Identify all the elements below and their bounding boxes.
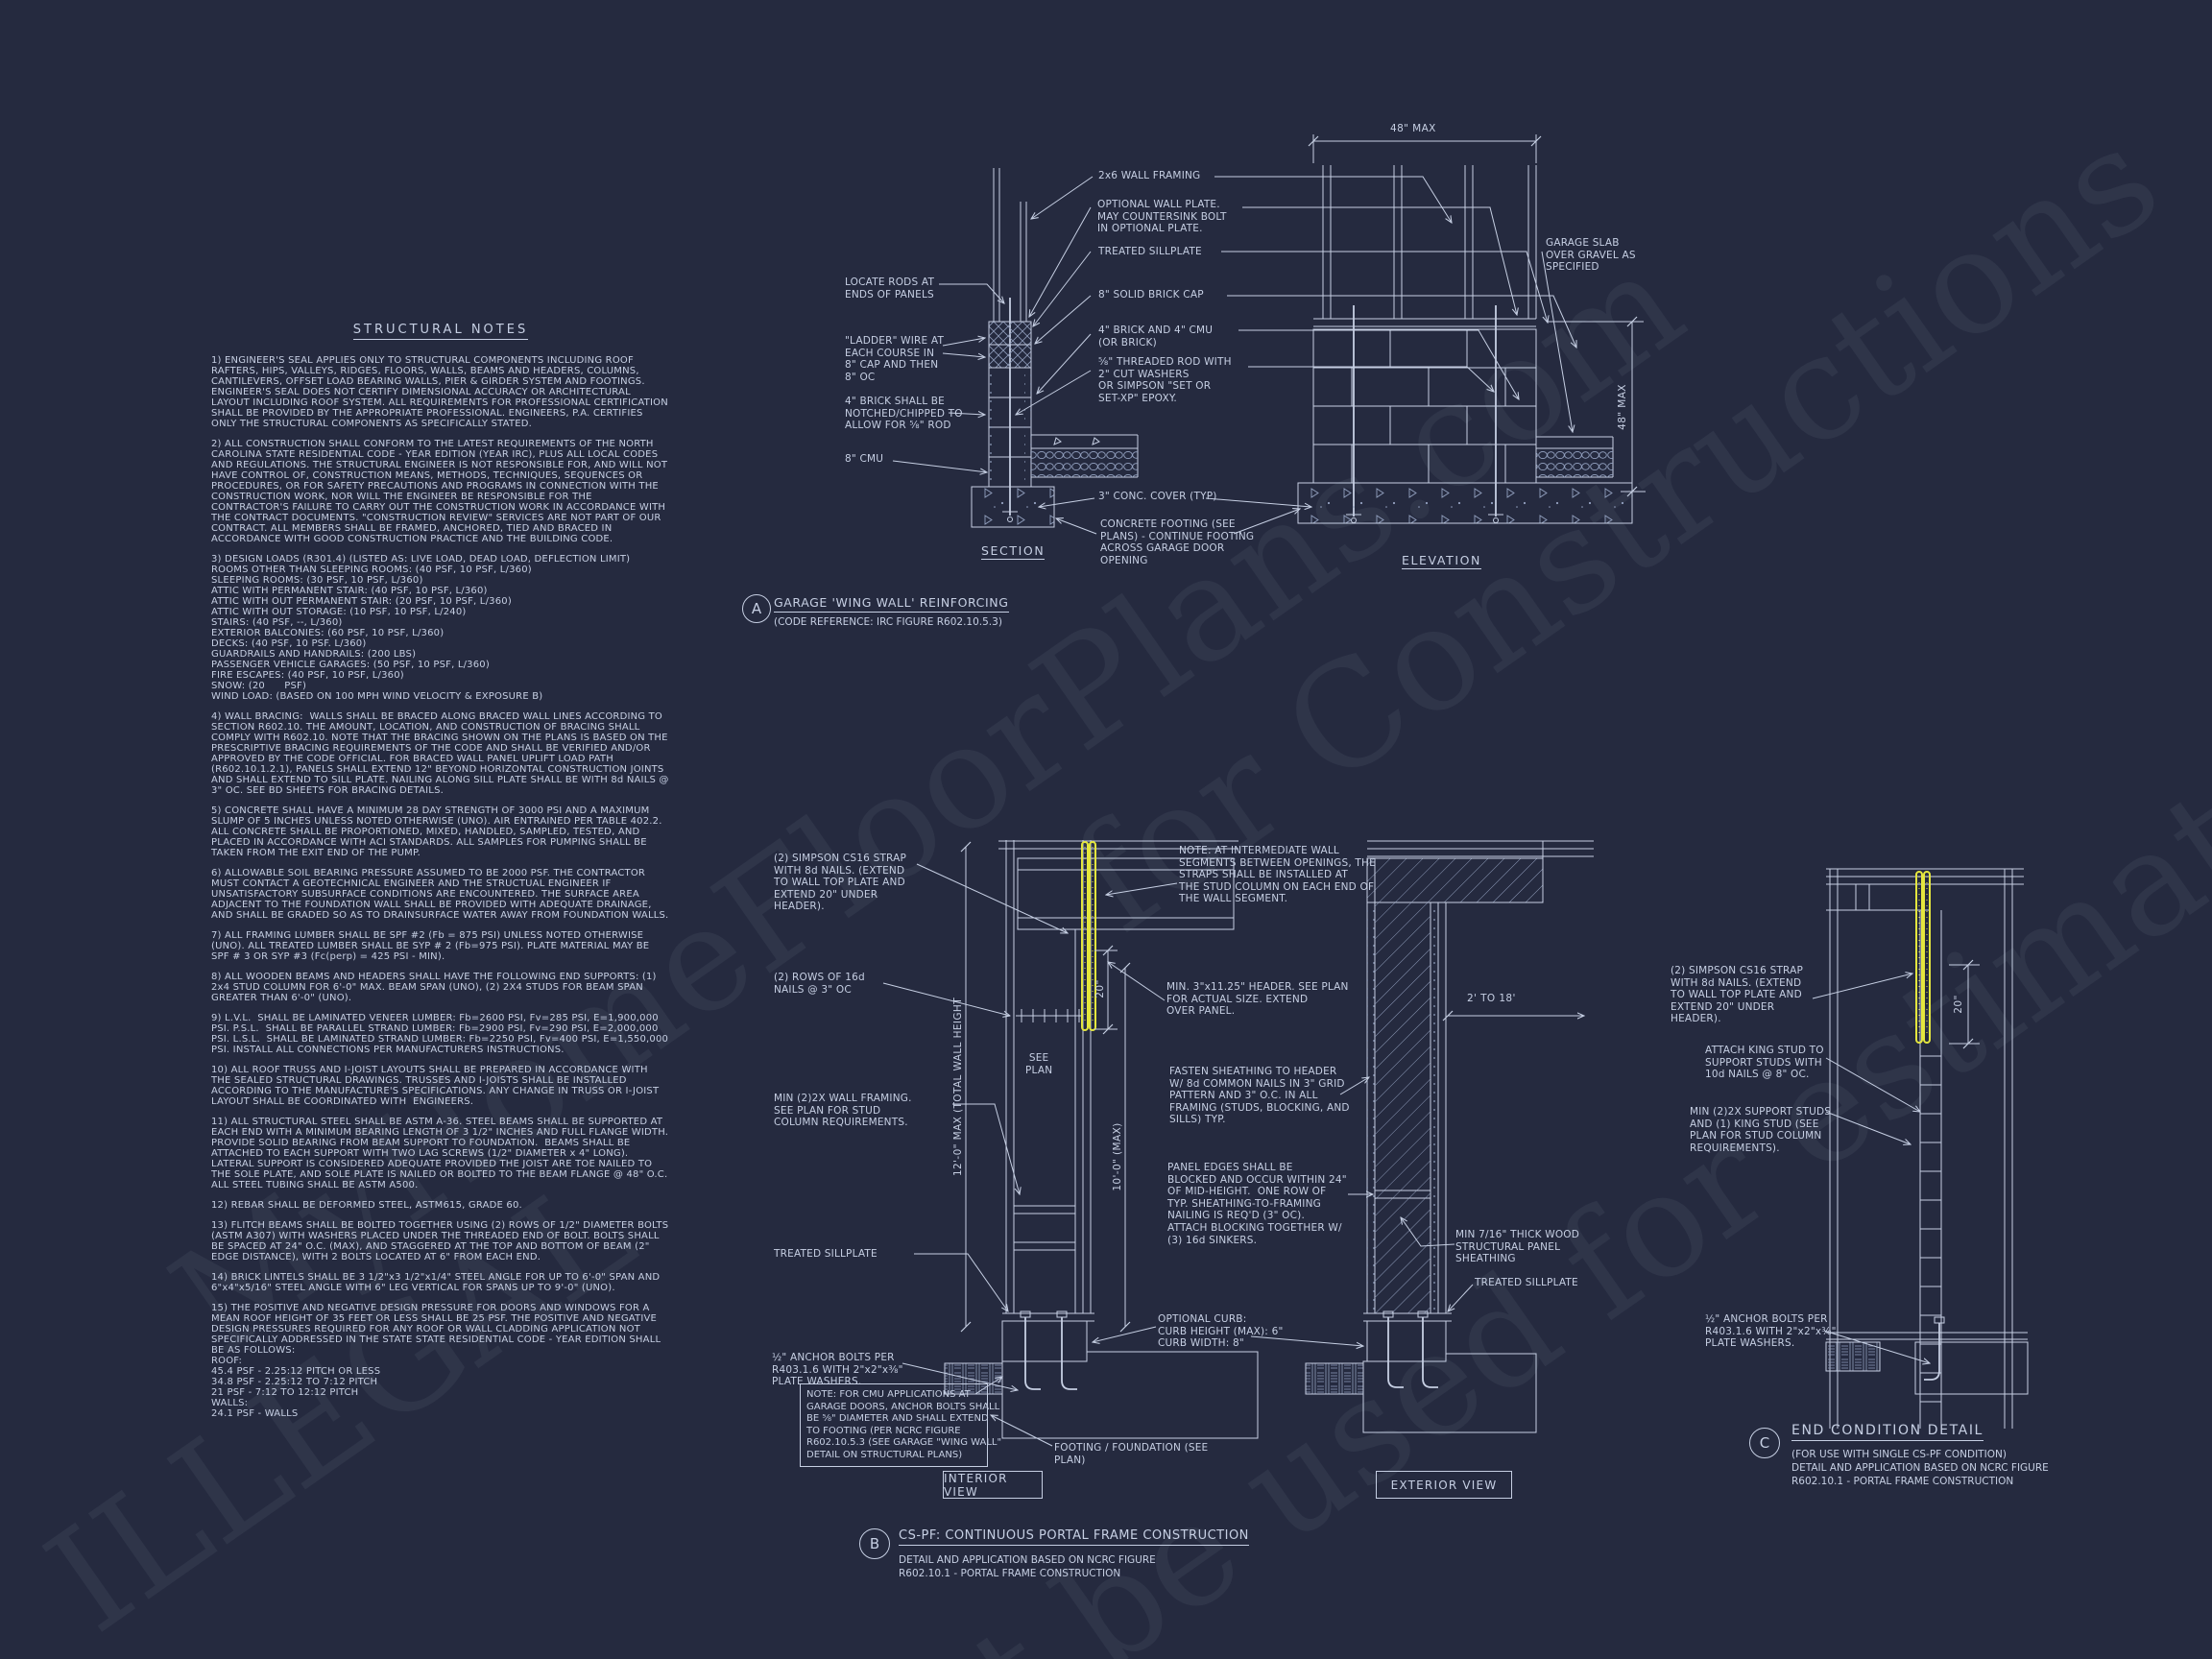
note-item: 9) L.V.L. SHALL BE LAMINATED VENEER LUMB… (211, 1013, 670, 1055)
label-8in-cmu: 8" CMU (845, 453, 883, 466)
label-panel-edges: PANEL EDGES SHALL BE BLOCKED AND OCCUR W… (1167, 1162, 1347, 1246)
label-min-header: MIN. 3"x11.25" HEADER. SEE PLAN FOR ACTU… (1166, 981, 1349, 1018)
note-item: 10) ALL ROOF TRUSS AND I-JOIST LAYOUTS S… (211, 1065, 670, 1107)
detail-a-heading: GARAGE 'WING WALL' REINFORCING (774, 595, 1009, 613)
blueprint-sheet: MyHomeFloorPlans.com for Constructions M… (0, 0, 2212, 1659)
label-concrete-footing: CONCRETE FOOTING (SEE PLANS) - CONTINUE … (1100, 518, 1254, 566)
dim-2-to-18: 2' TO 18' (1467, 993, 1516, 1004)
label-attach-king-stud: ATTACH KING STUD TO SUPPORT STUDS WITH 1… (1705, 1045, 1824, 1081)
label-anchor-bolts-c: ½" ANCHOR BOLTS PER R403.1.6 WITH 2"x2"x… (1705, 1313, 1837, 1350)
label-optional-curb: OPTIONAL CURB: CURB HEIGHT (MAX): 6" CUR… (1158, 1313, 1283, 1350)
detail-a-bubble: A (742, 594, 771, 623)
detail-b-exterior (1306, 841, 1594, 1432)
detail-c-bubble: C (1749, 1428, 1780, 1458)
label-sill-exterior: TREATED SILLPLATE (1475, 1277, 1578, 1289)
label-fasten-sheathing: FASTEN SHEATHING TO HEADER W/ 8d COMMON … (1169, 1066, 1350, 1126)
label-optional-plate: OPTIONAL WALL PLATE. MAY COUNTERSINK BOL… (1097, 199, 1227, 235)
detail-b-heading: CS-PF: CONTINUOUS PORTAL FRAME CONSTRUCT… (899, 1528, 1249, 1546)
label-note-intermediate: NOTE: AT INTERMEDIATE WALL SEGMENTS BETW… (1179, 845, 1376, 905)
notes-title: STRUCTURAL NOTES (353, 323, 528, 340)
interior-view-box: INTERIOR VIEW (943, 1471, 1043, 1499)
label-support-studs: MIN (2)2X SUPPORT STUDS AND (1) KING STU… (1690, 1106, 1831, 1154)
label-garage-slab: GARAGE SLAB OVER GRAVEL AS SPECIFIED (1546, 237, 1636, 274)
label-min-2x-wall: MIN (2)2X WALL FRAMING. SEE PLAN FOR STU… (774, 1093, 912, 1129)
detail-a-code-ref: (CODE REFERENCE: IRC FIGURE R602.10.5.3) (774, 615, 1002, 629)
cmu-note-box: NOTE: FOR CMU APPLICATIONS AT GARAGE DOO… (800, 1383, 988, 1467)
label-16d-rows: (2) ROWS OF 16d NAILS @ 3" OC (774, 972, 865, 996)
label-footing-foundation: FOOTING / FOUNDATION (SEE PLAN) (1054, 1442, 1208, 1466)
dim-20in-c: 20" (1953, 995, 1964, 1013)
label-solid-brick-cap: 8" SOLID BRICK CAP (1098, 289, 1204, 301)
note-item: 11) ALL STRUCTURAL STEEL SHALL BE ASTM A… (211, 1117, 670, 1190)
note-item: 2) ALL CONSTRUCTION SHALL CONFORM TO THE… (211, 439, 670, 544)
note-item: 15) THE POSITIVE AND NEGATIVE DESIGN PRE… (211, 1303, 670, 1419)
dim-20in-interior: 20" (1094, 979, 1106, 998)
label-simpson-strap-int: (2) SIMPSON CS16 STRAP WITH 8d NAILS. (E… (774, 853, 906, 913)
note-item: 3) DESIGN LOADS (R301.4) (LISTED AS: LIV… (211, 554, 670, 702)
exterior-view-box: EXTERIOR VIEW (1376, 1471, 1512, 1499)
label-treated-sillplate-a: TREATED SILLPLATE (1098, 246, 1202, 258)
label-threaded-rod: ⅝" THREADED ROD WITH 2" CUT WASHERS OR S… (1098, 356, 1232, 404)
note-item: 5) CONCRETE SHALL HAVE A MINIMUM 28 DAY … (211, 805, 670, 858)
label-min-sheathing: MIN 7/16" THICK WOOD STRUCTURAL PANEL SH… (1455, 1229, 1579, 1265)
label-simpson-strap-c: (2) SIMPSON CS16 STRAP WITH 8d NAILS. (E… (1671, 965, 1803, 1025)
note-item: 7) ALL FRAMING LUMBER SHALL BE SPF #2 (F… (211, 930, 670, 962)
note-item: 4) WALL BRACING: WALLS SHALL BE BRACED A… (211, 711, 670, 796)
note-item: 6) ALLOWABLE SOIL BEARING PRESSURE ASSUM… (211, 868, 670, 921)
dim-48-max-right: 48" MAX (1617, 384, 1628, 430)
detail-a-elevation (1298, 134, 1646, 523)
note-item: 12) REBAR SHALL BE DEFORMED STEEL, ASTM6… (211, 1200, 670, 1211)
note-item: 13) FLITCH BEAMS SHALL BE BOLTED TOGETHE… (211, 1220, 670, 1262)
dim-10ft-max: 10'-0" (MAX) (1112, 1122, 1123, 1190)
detail-c-sub: (FOR USE WITH SINGLE CS-PF CONDITION) DE… (1791, 1448, 2049, 1489)
label-brick-and-cmu: 4" BRICK AND 4" CMU (OR BRICK) (1098, 325, 1213, 349)
detail-c (1813, 869, 2028, 1429)
label-see-plan: SEE PLAN (1025, 1052, 1052, 1076)
label-2x6-framing: 2x6 WALL FRAMING (1098, 170, 1200, 182)
detail-b-sub: DETAIL AND APPLICATION BASED ON NCRC FIG… (899, 1553, 1156, 1580)
note-item: 14) BRICK LINTELS SHALL BE 3 1/2"x3 1/2"… (211, 1272, 670, 1293)
label-ladder-wire: "LADDER" WIRE AT EACH COURSE IN 8" CAP A… (845, 335, 944, 383)
label-brick-notched: 4" BRICK SHALL BE NOTCHED/CHIPPED TO ALL… (845, 396, 963, 432)
note-item: 1) ENGINEER'S SEAL APPLIES ONLY TO STRUC… (211, 355, 670, 429)
elevation-view-label: ELEVATION (1402, 553, 1481, 569)
label-conc-cover: 3" CONC. COVER (TYP) (1098, 491, 1217, 503)
label-sill-interior: TREATED SILLPLATE (774, 1248, 878, 1261)
dim-total-wall-height: 12'-0" MAX (TOTAL WALL HEIGHT (952, 998, 964, 1176)
section-view-label: SECTION (981, 543, 1045, 560)
structural-notes: STRUCTURAL NOTES 1) ENGINEER'S SEAL APPL… (211, 325, 670, 1429)
detail-c-heading: END CONDITION DETAIL (1791, 1423, 1984, 1441)
detail-b-bubble: B (859, 1528, 890, 1559)
note-item: 8) ALL WOODEN BEAMS AND HEADERS SHALL HA… (211, 972, 670, 1003)
label-locate-rods: LOCATE RODS AT ENDS OF PANELS (845, 276, 934, 301)
dim-48-max-top: 48" MAX (1390, 123, 1436, 134)
